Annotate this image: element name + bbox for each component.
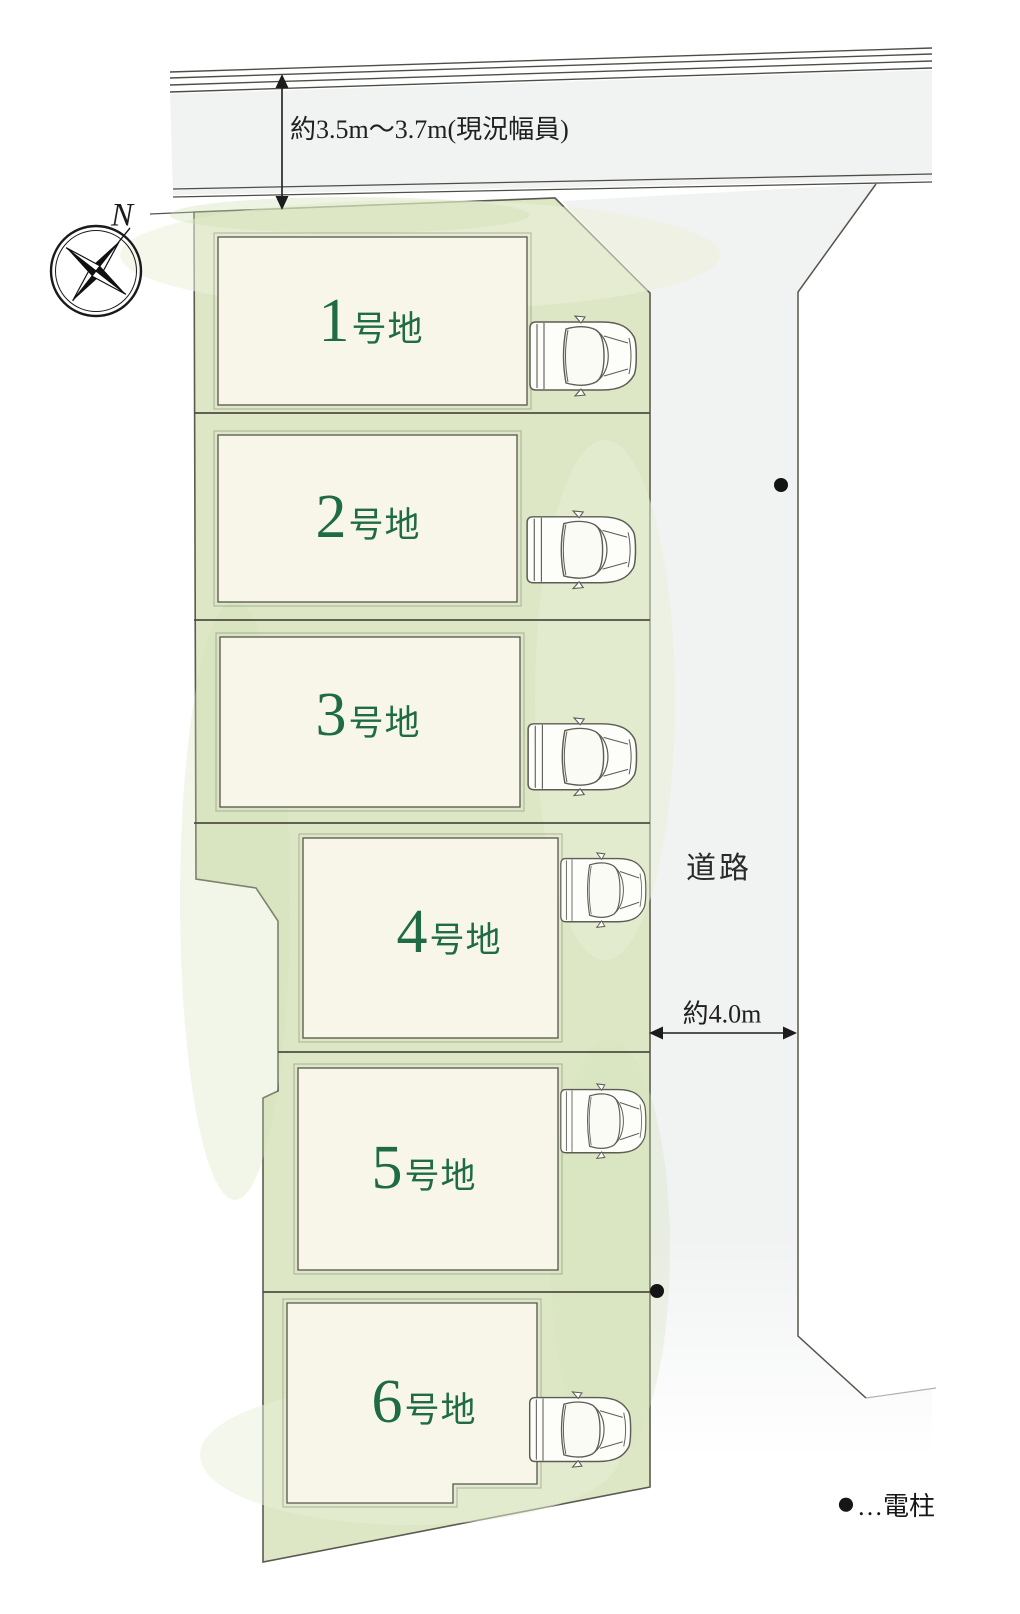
building-footprint-6 bbox=[287, 1303, 537, 1503]
building-footprint-2 bbox=[218, 435, 517, 602]
site-plan-drawing bbox=[0, 0, 1020, 1614]
east-road-right-edge bbox=[798, 184, 876, 1398]
car-icon bbox=[561, 1084, 646, 1158]
building-footprint-4 bbox=[303, 838, 558, 1038]
car-icon bbox=[530, 1392, 631, 1467]
utility-pole-dot bbox=[774, 478, 788, 492]
car-icon bbox=[528, 718, 636, 796]
car-icon bbox=[527, 511, 635, 589]
car-icon bbox=[561, 853, 646, 927]
car-icon bbox=[530, 316, 636, 396]
parcel-area bbox=[120, 197, 720, 1562]
building-footprint-5 bbox=[298, 1068, 558, 1270]
building-footprint-1 bbox=[218, 237, 527, 405]
site-plan: N 約3.5m〜3.7m(現況幅員) 道路 約4.0m 1 号地 2 号地 3 … bbox=[0, 0, 1020, 1614]
building-footprint-3 bbox=[220, 637, 520, 807]
utility-pole-dot bbox=[650, 1284, 664, 1298]
compass-rose bbox=[51, 226, 141, 316]
